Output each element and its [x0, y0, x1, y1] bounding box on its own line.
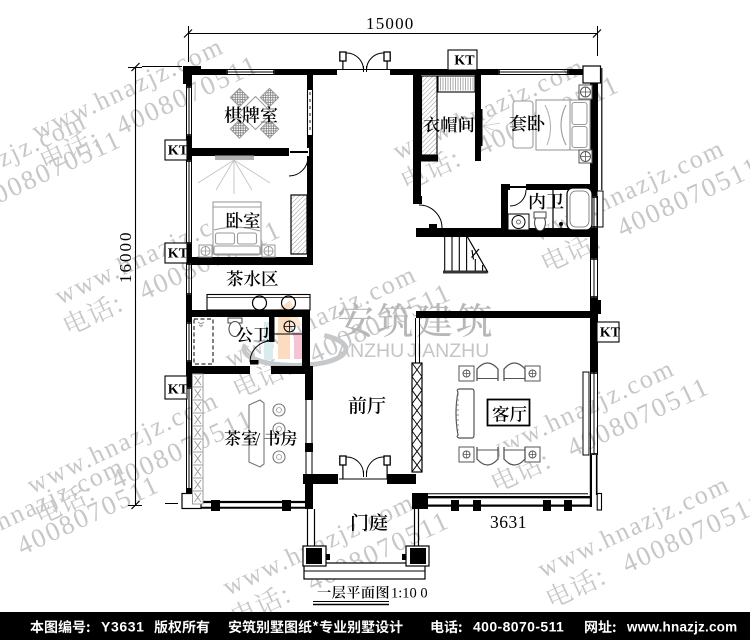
svg-text:ANZHU: ANZHU: [337, 340, 404, 362]
svg-text:/: /: [256, 429, 261, 448]
svg-text:400-8070-511: 400-8070-511: [473, 619, 564, 635]
svg-text:www.hnazjz.com: www.hnazjz.com: [626, 620, 737, 635]
svg-text:15000: 15000: [366, 14, 415, 33]
svg-text:3631: 3631: [490, 512, 527, 532]
svg-text:1:10 0: 1:10 0: [391, 586, 428, 602]
svg-text:16000: 16000: [116, 231, 135, 284]
svg-text:Y3631: Y3631: [101, 619, 144, 635]
